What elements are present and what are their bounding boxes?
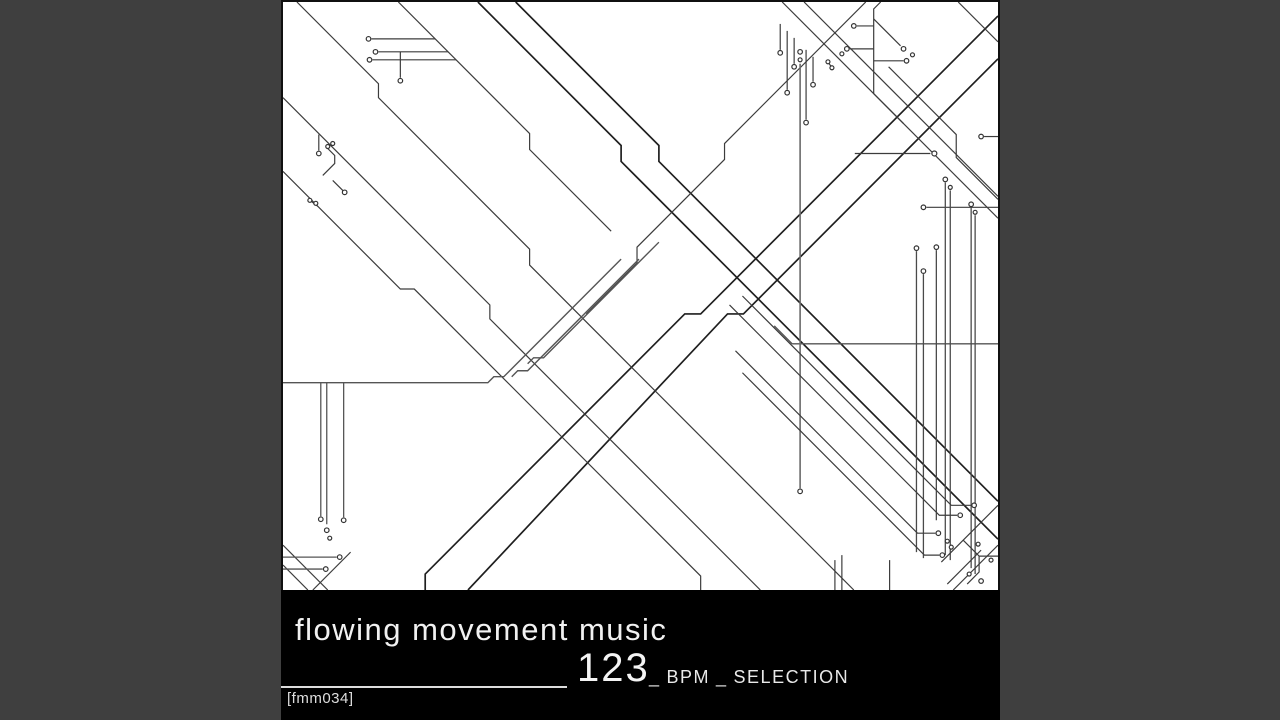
bpm-label: BPM xyxy=(667,667,711,687)
video-frame: flowing movement music 123 _BPM_SELECTIO… xyxy=(0,0,1280,720)
selection-label: SELECTION xyxy=(734,667,850,687)
catalog-number: [fmm034] xyxy=(287,690,354,707)
circuit-art-drawing xyxy=(283,2,998,590)
label-title: flowing movement music xyxy=(295,612,667,648)
circuit-art-canvas xyxy=(281,0,1000,590)
bpm-number: 123 xyxy=(577,648,650,688)
bpm-selection-line: _BPM_SELECTION xyxy=(643,668,849,688)
album-cover: flowing movement music 123 _BPM_SELECTIO… xyxy=(281,0,1000,720)
caption-band: flowing movement music 123 _BPM_SELECTIO… xyxy=(281,590,1000,720)
separator-left: _ xyxy=(643,667,667,687)
separator-right: _ xyxy=(710,667,734,687)
underline-rule xyxy=(281,686,567,688)
